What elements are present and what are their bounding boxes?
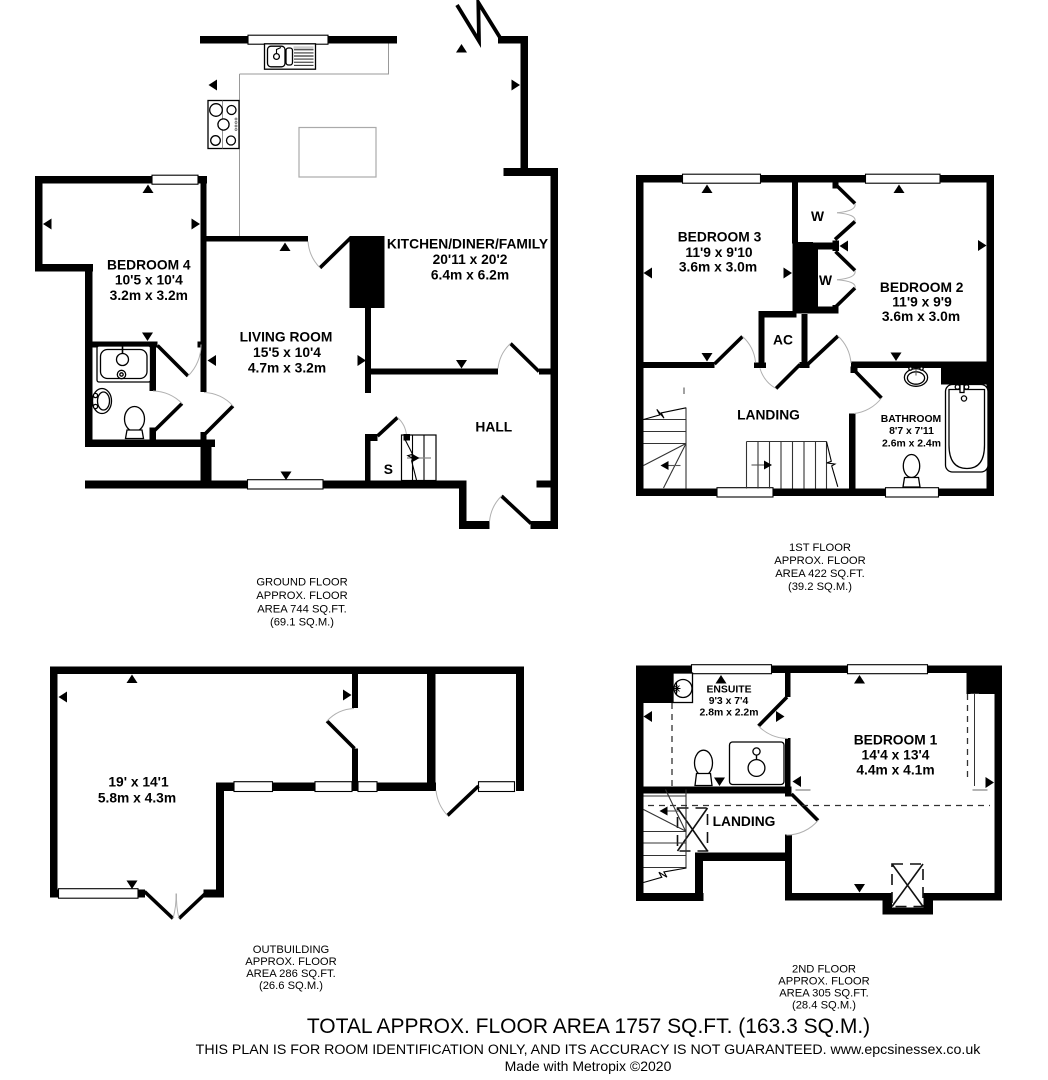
svg-text:11'9 x 9'9: 11'9 x 9'9 — [892, 295, 952, 310]
svg-text:(28.4 SQ.M.): (28.4 SQ.M.) — [792, 1000, 856, 1012]
svg-text:KITCHEN/DINER/FAMILY: KITCHEN/DINER/FAMILY — [387, 237, 548, 252]
svg-text:OUTBUILDING: OUTBUILDING — [253, 944, 329, 956]
svg-text:APPROX. FLOOR: APPROX. FLOOR — [778, 976, 869, 988]
svg-text:BATHROOM: BATHROOM — [881, 414, 941, 425]
svg-text:AC: AC — [773, 333, 793, 348]
svg-text:14'4 x 13'4: 14'4 x 13'4 — [862, 748, 930, 763]
svg-text:(39.2 SQ.M.): (39.2 SQ.M.) — [788, 581, 852, 593]
svg-text:20'11 x 20'2: 20'11 x 20'2 — [433, 252, 508, 267]
svg-text:3.2m x 3.2m: 3.2m x 3.2m — [110, 288, 188, 303]
svg-text:5.8m x 4.3m: 5.8m x 4.3m — [98, 791, 176, 806]
svg-text:19' x 14'1: 19' x 14'1 — [108, 775, 169, 790]
svg-text:TOTAL APPROX. FLOOR AREA 1757: TOTAL APPROX. FLOOR AREA 1757 SQ.FT. (16… — [307, 1015, 870, 1038]
svg-text:4.7m x 3.2m: 4.7m x 3.2m — [248, 361, 326, 376]
svg-text:10'5 x 10'4: 10'5 x 10'4 — [115, 273, 183, 288]
svg-text:HALL: HALL — [475, 420, 512, 435]
svg-text:LANDING: LANDING — [737, 408, 800, 423]
svg-text:4.4m x 4.1m: 4.4m x 4.1m — [856, 763, 934, 778]
svg-text:8'7 x 7'11: 8'7 x 7'11 — [889, 426, 934, 437]
svg-text:APPROX. FLOOR: APPROX. FLOOR — [245, 956, 336, 968]
svg-text:S: S — [384, 462, 393, 477]
svg-text:BEDROOM 2: BEDROOM 2 — [880, 280, 964, 295]
svg-text:(26.6 SQ.M.): (26.6 SQ.M.) — [259, 980, 323, 992]
svg-text:LANDING: LANDING — [713, 814, 776, 829]
svg-text:2.8m x 2.2m: 2.8m x 2.2m — [700, 708, 759, 719]
svg-text:BEDROOM 4: BEDROOM 4 — [107, 258, 191, 273]
svg-text:AREA 286 SQ.FT.: AREA 286 SQ.FT. — [246, 968, 336, 980]
svg-text:3.6m x 3.0m: 3.6m x 3.0m — [679, 260, 757, 275]
svg-text:W: W — [811, 209, 825, 224]
svg-text:LIVING ROOM: LIVING ROOM — [240, 330, 333, 345]
svg-text:6.4m x 6.2m: 6.4m x 6.2m — [431, 268, 509, 283]
svg-text:(69.1 SQ.M.): (69.1 SQ.M.) — [270, 617, 334, 629]
svg-text:APPROX. FLOOR: APPROX. FLOOR — [256, 590, 347, 602]
svg-text:Made with Metropix ©2020: Made with Metropix ©2020 — [505, 1058, 672, 1074]
svg-text:GROUND FLOOR: GROUND FLOOR — [256, 577, 347, 589]
svg-text:BEDROOM 1: BEDROOM 1 — [854, 733, 938, 748]
svg-text:AREA 422 SQ.FT.: AREA 422 SQ.FT. — [775, 568, 865, 580]
svg-text:2.6m x 2.4m: 2.6m x 2.4m — [882, 438, 941, 449]
svg-text:APPROX. FLOOR: APPROX. FLOOR — [774, 555, 865, 567]
svg-text:2ND FLOOR: 2ND FLOOR — [792, 964, 856, 976]
svg-text:AREA 305 SQ.FT.: AREA 305 SQ.FT. — [779, 988, 869, 1000]
svg-text:1ST FLOOR: 1ST FLOOR — [789, 542, 851, 554]
svg-text:11'9 x 9'10: 11'9 x 9'10 — [685, 245, 753, 260]
svg-text:AREA 744 SQ.FT.: AREA 744 SQ.FT. — [257, 604, 347, 616]
svg-text:THIS PLAN IS FOR ROOM IDENTIFI: THIS PLAN IS FOR ROOM IDENTIFICATION ONL… — [196, 1042, 982, 1058]
svg-text:W: W — [819, 273, 833, 288]
svg-text:BEDROOM 3: BEDROOM 3 — [678, 230, 762, 245]
svg-text:3.6m x 3.0m: 3.6m x 3.0m — [882, 309, 960, 324]
svg-text:ENSUITE: ENSUITE — [706, 685, 751, 696]
svg-text:15'5 x 10'4: 15'5 x 10'4 — [253, 345, 321, 360]
svg-text:9'3 x 7'4: 9'3 x 7'4 — [709, 696, 749, 707]
